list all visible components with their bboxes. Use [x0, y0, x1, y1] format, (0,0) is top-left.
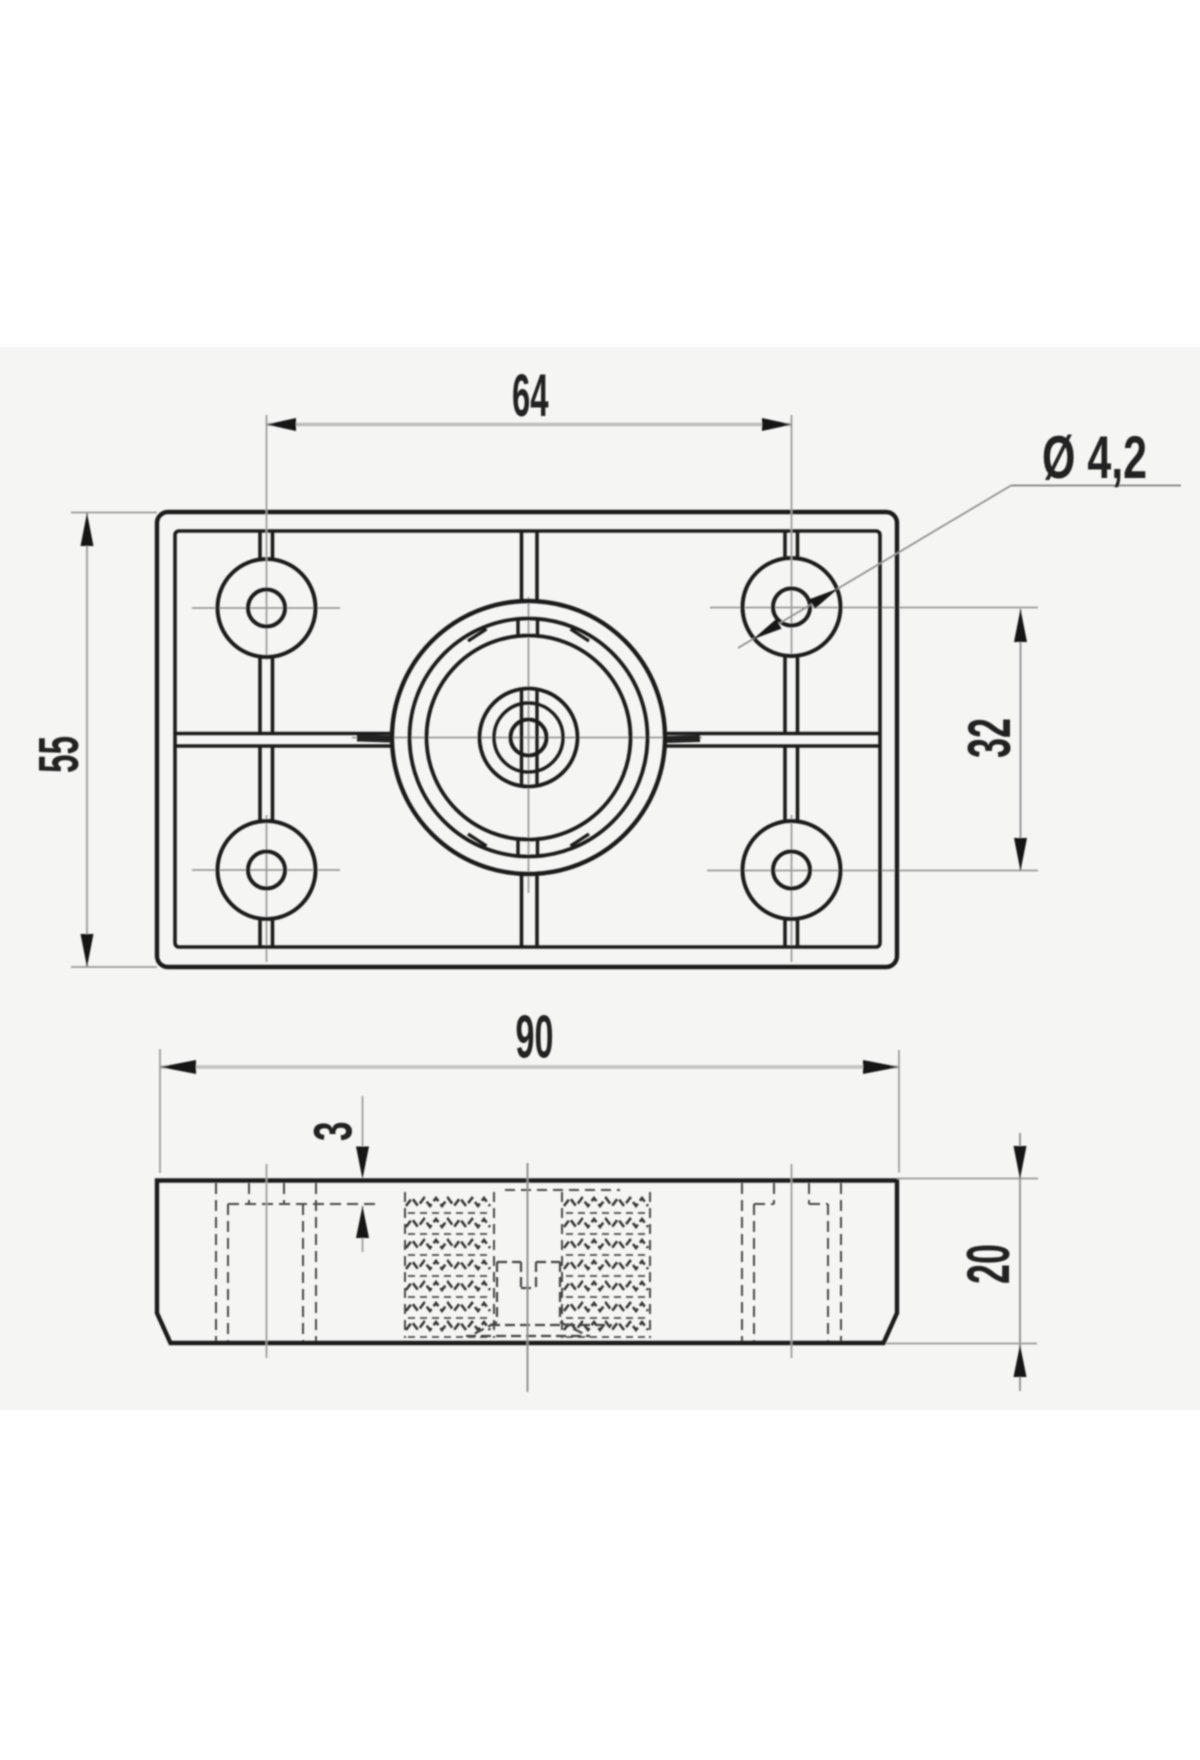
svg-text:Ø 4,2: Ø 4,2 [1042, 424, 1147, 491]
svg-text:90: 90 [516, 1004, 554, 1071]
svg-text:32: 32 [956, 718, 1023, 758]
svg-text:20: 20 [955, 1244, 1022, 1284]
svg-text:3: 3 [304, 1122, 364, 1142]
svg-text:64: 64 [512, 362, 549, 429]
svg-text:55: 55 [27, 736, 91, 773]
